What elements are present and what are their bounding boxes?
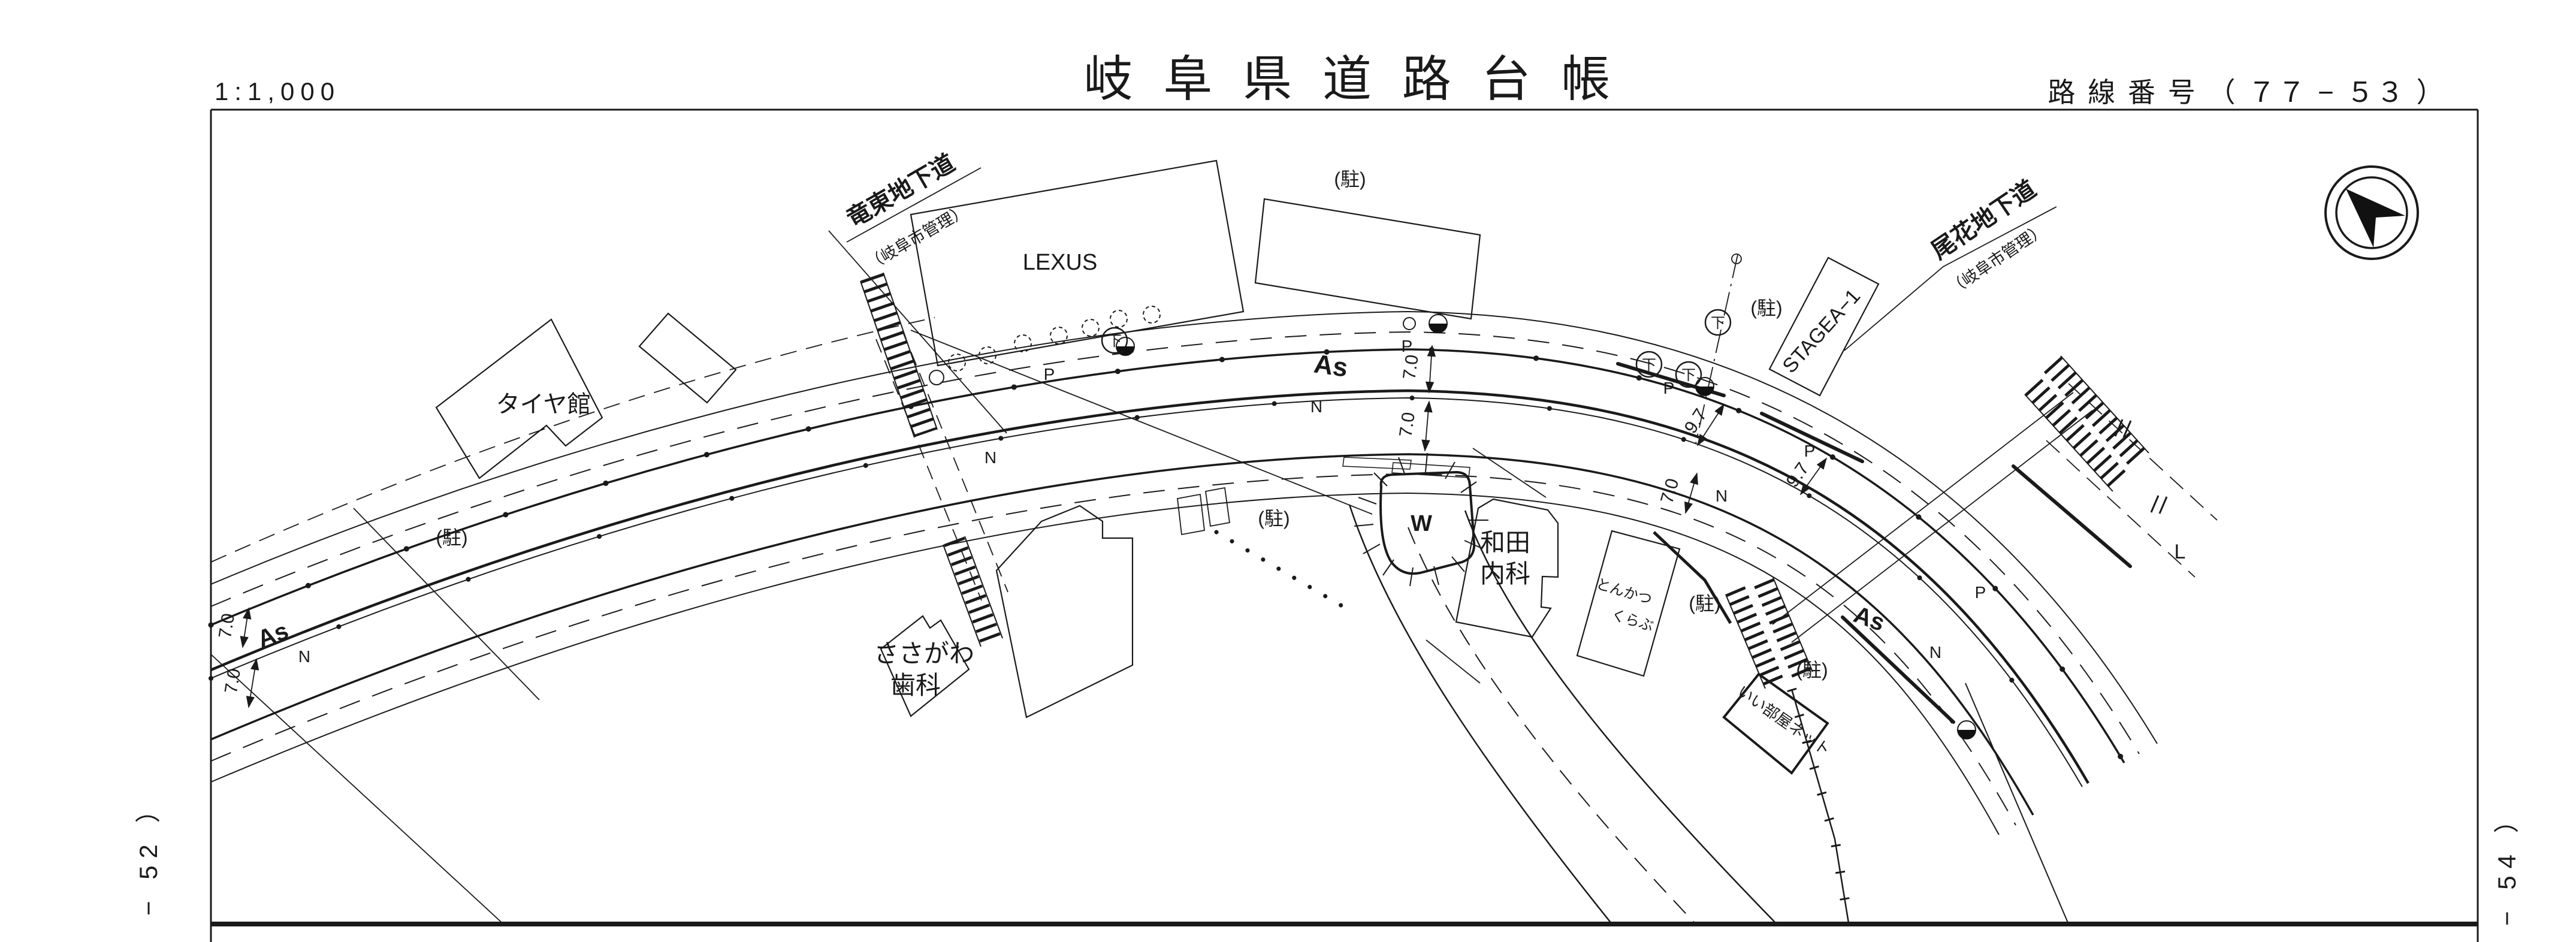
dotted-path <box>1216 532 1353 612</box>
underpass-right: 尾花地下道 （岐阜市管理） <box>1726 176 2149 689</box>
n-mark-label: N <box>1929 643 1941 662</box>
corner-mark-label: L <box>2175 541 2186 563</box>
tree-icon <box>1082 319 1099 336</box>
stair-rail <box>2061 356 2149 453</box>
building-label-sasagawa-1: ささがわ <box>874 639 974 668</box>
sewer-glyph: 下 <box>1642 357 1656 373</box>
point-labels: (駐) (駐) (駐) (駐) (駐) (駐) As As As N N N N… <box>254 168 2185 681</box>
sewer-manhole-icon: 下 <box>1676 362 1701 387</box>
dim-label-7-0: 7.0 <box>221 667 244 695</box>
street-trees <box>949 306 1160 371</box>
parking-label: (駐) <box>1334 168 1366 190</box>
route-number-label: 路 線 番 号 （ ７７ − ５３ ） <box>2047 77 2446 108</box>
dim-line <box>1425 401 1429 451</box>
manhole-icon <box>929 370 944 385</box>
parking-label: (駐) <box>1796 659 1828 681</box>
road-ledger-sheet: 1:1,000 岐 阜 県 道 路 台 帳 路 線 番 号 （ ７７ − ５３ … <box>0 0 2576 942</box>
underpass-left: 竜東地下道 （岐阜市管理） <box>842 150 1008 647</box>
n-mark-label: N <box>985 448 996 467</box>
buildings <box>436 161 1879 773</box>
boundary-lines <box>211 231 2217 924</box>
building-label-wada-1: 和田 <box>1480 529 1530 557</box>
n-mark-label: N <box>298 647 310 666</box>
building-label-lexus: LEXUS <box>1023 250 1098 275</box>
pole-label: P <box>1044 365 1055 384</box>
tree-icon <box>1143 306 1160 323</box>
pole-label: P <box>1663 379 1675 397</box>
parking-label: (駐) <box>436 527 467 548</box>
plot-line-wada-south <box>1426 640 1480 683</box>
n-mark-label: N <box>1716 487 1728 505</box>
pole-label: P <box>1975 583 1986 602</box>
parking-label: (駐) <box>1750 297 1782 319</box>
plot-line-wada-north <box>1473 448 1546 497</box>
parallel-mark-2b <box>2160 497 2167 514</box>
road-south-dashed-line <box>211 474 2016 825</box>
parking-label: (駐) <box>1689 593 1720 614</box>
building-label-tonkatsu-1: とんかつ <box>1594 576 1654 608</box>
shed-2 <box>1206 488 1230 526</box>
shed-1 <box>1177 494 1204 535</box>
dim-label-7-0: 7.0 <box>1399 354 1422 381</box>
stair-rail <box>1773 578 1813 672</box>
parallel-mark-2 <box>2151 496 2158 512</box>
building-small-1 <box>639 313 736 403</box>
road-south-sidewalk-outer-line <box>211 493 1999 835</box>
pole-label: P <box>1804 442 1816 460</box>
parking-label: (駐) <box>1258 508 1289 529</box>
branch-road-dashed-line <box>1408 527 1696 924</box>
underpass-left-corridor-1 <box>876 339 982 600</box>
adjacent-sheet-left: − 52 ） <box>134 790 162 916</box>
dim-line <box>1429 346 1432 393</box>
dashed-plot-line-east-1 <box>2068 384 2217 520</box>
sewer-manhole-icon: 下 <box>1636 352 1662 377</box>
sewer-manhole-icon: 下 <box>1705 310 1731 335</box>
building-label-sasagawa-2: 歯科 <box>890 671 941 699</box>
north-arrow-icon <box>2326 167 2418 259</box>
stair-rail <box>965 536 1002 638</box>
dim-line <box>243 608 249 647</box>
map-frame <box>211 110 2478 942</box>
building-label-stagea: STAGEA−1 <box>1778 285 1865 378</box>
dim-label-7-0: 7.0 <box>1396 411 1418 439</box>
page-title: 岐 阜 県 道 路 台 帳 <box>1084 52 1619 107</box>
scale-label: 1:1,000 <box>215 77 340 105</box>
underpass-right-corridor-1 <box>1772 393 2073 624</box>
n-mark-label: N <box>1310 397 1322 416</box>
asphalt-label: As <box>1312 349 1350 382</box>
pole-label: P <box>1402 337 1413 355</box>
underpass-right-corridor-2 <box>1792 410 2092 642</box>
building-northeast <box>1255 199 1480 319</box>
adjacent-sheet-right: − 54 ） <box>2493 801 2521 926</box>
stair-rail <box>2025 394 2113 491</box>
building-tonkatsu <box>1577 531 1680 676</box>
building-label-tire: タイヤ館 <box>496 391 591 418</box>
benchmark-icon <box>1958 721 1976 739</box>
building-label-tonkatsu-2: くらぶ <box>1609 606 1656 635</box>
benchmark-icon <box>1429 315 1447 333</box>
dim-line <box>1686 473 1697 513</box>
water-label: W <box>1411 511 1432 536</box>
underpass-right-stairs-south-1 <box>1735 590 1775 684</box>
dim-label-7-0: 7.0 <box>215 612 238 639</box>
underpass-left-stairs-south <box>954 541 992 642</box>
road-north-sidewalk-outer-line <box>211 312 2157 744</box>
sewer-glyph: 下 <box>1681 367 1696 384</box>
map-canvas: 1:1,000 岐 阜 県 道 路 台 帳 路 線 番 号 （ ７７ − ５３ … <box>0 0 2576 942</box>
benchmark-icon <box>1116 337 1134 355</box>
sewer-glyph: 下 <box>1711 315 1725 331</box>
dim-label-7-0: 7.0 <box>1657 476 1683 506</box>
building-label-wada-2: 内科 <box>1480 560 1530 588</box>
dim-line <box>249 659 256 707</box>
manhole-icon <box>1403 318 1415 330</box>
building-large-unlabeled <box>996 506 1133 717</box>
tree-icon <box>1110 310 1127 327</box>
plot-line-bottom-left <box>211 654 503 924</box>
guardrail-south-1 <box>1843 617 1953 722</box>
